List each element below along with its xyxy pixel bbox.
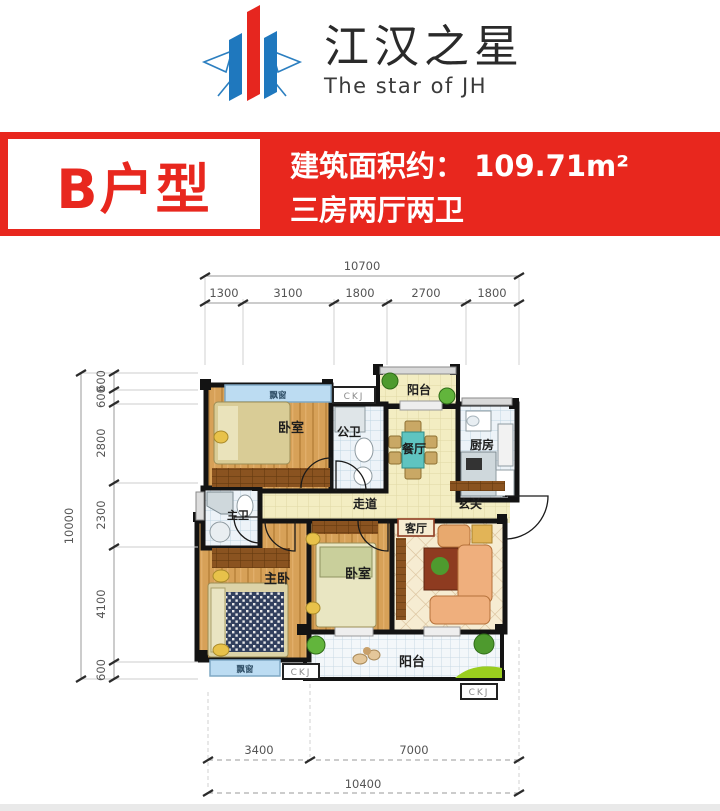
label-bay-bottom: 飘窗	[236, 664, 254, 675]
toilet-guest	[355, 438, 373, 462]
dim-top-seg-4: 2700	[411, 286, 440, 300]
label-balcony-top: 阳台	[407, 382, 431, 397]
unit-type-label: B户型	[56, 145, 211, 224]
window-code-bottom-right: CKJ	[469, 688, 490, 698]
dim-left-total: 10000	[62, 508, 76, 545]
label-dining: 餐厅	[402, 441, 426, 456]
label-foyer: 玄关	[458, 496, 482, 511]
dim-top-seg-1: 1300	[209, 286, 238, 300]
wardrobe-master	[212, 548, 290, 568]
wardrobe-bottom	[312, 521, 378, 534]
label-bedroom-bottom: 卧室	[345, 566, 371, 582]
unit-layout-text: 三房两厅两卫	[290, 188, 629, 232]
label-guest-bath: 公卫	[337, 425, 361, 439]
shoe-cabinet	[450, 481, 505, 491]
brand-name: 江汉之星	[324, 22, 584, 72]
brand-text: 江汉之星 The star of JH	[324, 22, 584, 98]
dim-top-seg-3: 1800	[345, 286, 374, 300]
dim-left-seg-3: 2800	[94, 428, 108, 457]
dim-bottom-seg-1: 3400	[244, 743, 273, 757]
label-balcony-bottom: 阳台	[399, 654, 425, 670]
sofa	[458, 545, 492, 603]
bottom-strip	[0, 804, 720, 811]
dim-top-seg-2: 3100	[273, 286, 302, 300]
dim-left-seg-2: 600	[94, 386, 108, 408]
dim-bottom-total: 10400	[345, 777, 382, 791]
window-code-bottom-left: CKJ	[291, 668, 312, 678]
tv-cabinet	[396, 538, 406, 620]
kitchen-window	[462, 398, 512, 405]
label-kitchen: 厨房	[470, 437, 494, 452]
label-corridor: 走道	[353, 496, 377, 511]
label-master-bath: 主卫	[227, 508, 249, 522]
dim-left-seg-5: 4100	[94, 589, 108, 618]
master-bath-window	[196, 492, 204, 520]
label-bedroom-top: 卧室	[278, 420, 304, 436]
window-code-top: CKJ	[344, 392, 365, 402]
label-bay-top: 飘窗	[269, 390, 287, 401]
bedroom-balcony-door	[335, 627, 373, 636]
living-balcony-door	[424, 627, 460, 636]
unit-area-text: 建筑面积约： 109.71m²	[290, 144, 629, 188]
dim-bottom-seg-2: 7000	[399, 743, 428, 757]
brand-subtitle: The star of JH	[324, 74, 584, 98]
dim-top-total: 10700	[344, 259, 381, 273]
floor-plan: CKJ CKJ CKJ 阳台 飘窗 卧室 公卫 餐厅 厨房 玄关 走道 主卫 主…	[0, 240, 720, 811]
unit-banner: B户型 建筑面积约： 109.71m² 三房两厅两卫	[0, 132, 720, 236]
dim-left-seg-6: 600	[94, 659, 108, 681]
label-master-bedroom: 主卧	[264, 571, 290, 587]
armchair	[438, 525, 470, 547]
label-living: 客厅	[404, 521, 427, 535]
poster-page: 江汉之星 The star of JH B户型 建筑面积约： 109.71m² …	[0, 0, 720, 811]
wardrobe-top	[212, 468, 330, 487]
dim-top-seg-5: 1800	[477, 286, 506, 300]
unit-info: 建筑面积约： 109.71m² 三房两厅两卫	[290, 144, 629, 232]
dim-left-seg-4: 2300	[94, 500, 108, 529]
brand-logo-icon	[196, 4, 308, 116]
dining-balcony-door	[400, 401, 442, 410]
unit-type-box: B户型	[8, 139, 260, 229]
